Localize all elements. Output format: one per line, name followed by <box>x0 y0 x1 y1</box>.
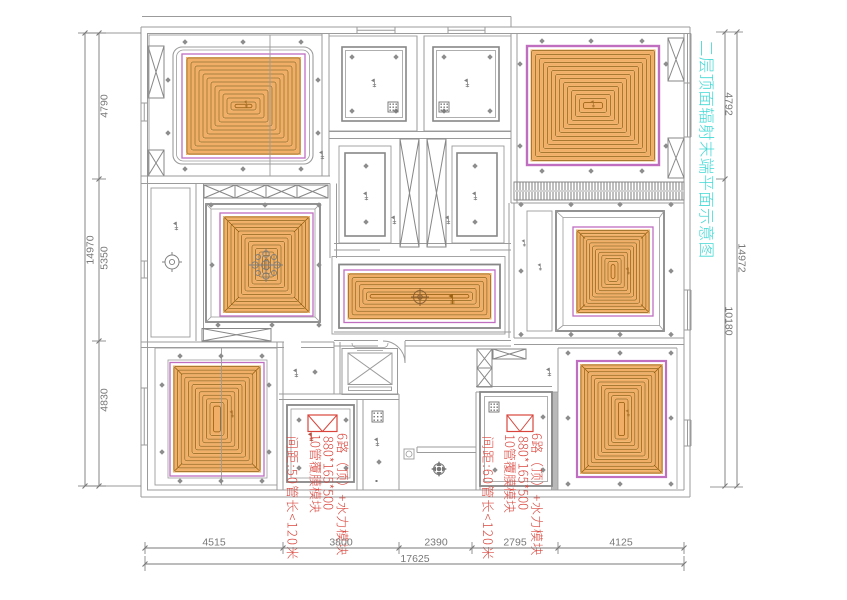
svg-text:2390: 2390 <box>424 537 448 549</box>
svg-text:17625: 17625 <box>400 553 429 565</box>
svg-text:4790: 4790 <box>99 94 111 118</box>
svg-text:5350: 5350 <box>99 246 111 270</box>
svg-text:4792: 4792 <box>723 92 735 116</box>
svg-text:4125: 4125 <box>609 537 633 549</box>
svg-text:4830: 4830 <box>99 388 111 412</box>
svg-text:14970: 14970 <box>85 235 97 264</box>
svg-text:4515: 4515 <box>202 537 226 549</box>
svg-text:14972: 14972 <box>736 243 748 272</box>
svg-text:10180: 10180 <box>723 306 735 335</box>
svg-text:3800: 3800 <box>329 537 353 549</box>
svg-text:2795: 2795 <box>503 537 527 549</box>
